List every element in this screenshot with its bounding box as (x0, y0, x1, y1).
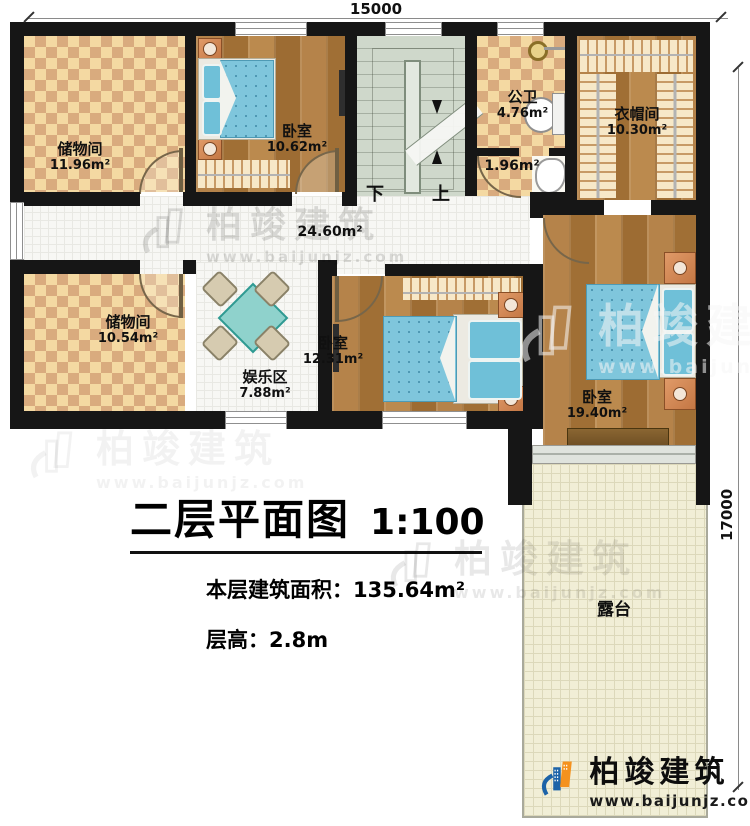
room-label-bedroom3: 卧室 19.40m² (547, 388, 647, 422)
nightstand (198, 38, 222, 60)
pillow (202, 64, 222, 100)
wall-hall-top-b (183, 192, 292, 206)
room-name: 娱乐区 (215, 368, 315, 386)
window-bedroom1-top (235, 22, 307, 36)
logo-brand-text: 柏竣建筑 (589, 755, 729, 790)
room-area: 19.40m² (547, 406, 647, 422)
closet-top-rack (580, 40, 693, 72)
room-name: 储物间 (73, 313, 183, 331)
room-area: 12.31m² (283, 352, 383, 368)
window-bedroom2-bottom (382, 411, 467, 429)
dimension-right-value: 17000 (718, 478, 736, 552)
room-label-bath-small: 1.96m² (472, 158, 552, 175)
wall-storage1-bedroom1 (185, 36, 196, 192)
dimension-tick (23, 11, 34, 22)
wall-hall-top-a (24, 192, 140, 206)
wall-cloak-bottom-a (543, 200, 604, 215)
pillow (468, 320, 522, 360)
room-label-fun: 娱乐区 7.88m² (215, 368, 315, 402)
room-label-bedroom1: 卧室 10.62m² (247, 122, 347, 156)
wall-hall-bottom-b (183, 260, 196, 274)
wall-top (10, 22, 710, 36)
logo-url-text: www.baijunjz.com (589, 792, 750, 810)
wall-terrace-left-stub (508, 429, 532, 505)
room-label-cloakroom: 衣帽间 10.30m² (587, 105, 687, 139)
wall-bath-cloak (565, 36, 577, 206)
wall-cloak-bottom-b (651, 200, 696, 215)
window-bath-top (497, 22, 544, 36)
room-area: 10.62m² (247, 140, 347, 156)
room-area: 24.60m² (290, 224, 370, 241)
floor-area-text: 本层建筑面积：135.64m² (206, 574, 490, 604)
room-name: 储物间 (25, 140, 135, 158)
room-name: 公卫 (480, 88, 565, 106)
room-name: 露台 (564, 600, 664, 620)
nightstand (664, 378, 696, 410)
watermark: 柏竣建筑www.baijunjz.com (28, 418, 307, 492)
room-label-storage2: 储物间 10.54m² (73, 313, 183, 347)
nightstand (198, 138, 222, 160)
pillow (662, 332, 694, 376)
room-name: 衣帽间 (587, 105, 687, 123)
wardrobe-rack (198, 160, 290, 188)
room-label-bedroom2: 卧室 12.31m² (283, 334, 383, 368)
company-logo: 柏竣建筑 www.baijunjz.com (540, 742, 750, 814)
wall-hall-bedroom3-stub (530, 196, 543, 218)
wall-bedroom2-top (385, 264, 523, 276)
dimension-line-right (738, 68, 739, 790)
door-leaf-storage1 (179, 148, 183, 192)
stairs-label-down: 下 (358, 184, 392, 206)
pillow (202, 100, 222, 136)
pillow (662, 288, 694, 332)
wall-hall-bottom-a (24, 260, 140, 274)
shower-arm-icon (544, 47, 565, 50)
floorplan-canvas: 下 上 储物间 11.96m² 卧室 10.62m² 公 (0, 0, 750, 826)
stairs-down-text: 下 (366, 184, 384, 205)
door-leaf-bedroom2 (335, 276, 339, 322)
door-leaf-storage2 (179, 274, 183, 318)
dimension-tick (715, 11, 726, 22)
floor-height-text: 层高：2.8m (206, 624, 490, 654)
room-area: 1.96m² (472, 158, 552, 175)
room-label-bath: 公卫 4.76m² (480, 88, 565, 122)
nightstand (498, 292, 524, 318)
window-hall-left (10, 202, 24, 260)
pillow (468, 360, 522, 400)
wall-hall-top-c (342, 192, 357, 206)
room-area: 10.30m² (587, 123, 687, 139)
room-area: 10.54m² (73, 331, 183, 347)
window-stairs-top (385, 22, 442, 36)
room-label-storage1: 储物间 11.96m² (25, 140, 135, 174)
wall-bath-divider-a (477, 148, 519, 156)
title-block: 二层平面图1:100 本层建筑面积：135.64m² 层高：2.8m (130, 486, 490, 654)
terrace-sliding-door (532, 445, 696, 464)
watermark-building-icon (28, 423, 86, 487)
drawing-scale: 1:100 (370, 502, 485, 543)
room-area: 4.76m² (480, 106, 565, 122)
wall-bedroom2-bedroom3 (523, 264, 543, 429)
logo-building-icon (540, 742, 581, 814)
wall-right (696, 22, 710, 505)
stairs-arrow-up-icon (432, 150, 442, 164)
shower-head-icon (528, 41, 548, 61)
room-label-terrace: 露台 (564, 600, 664, 620)
room-area: 7.88m² (215, 386, 315, 402)
room-area: 11.96m² (25, 158, 135, 174)
room-label-hall: 24.60m² (290, 224, 370, 241)
dimension-line-top (28, 18, 728, 19)
window-funzone-bottom (225, 411, 287, 429)
stairs-arrow-down-icon (432, 100, 442, 114)
dimension-top-value: 15000 (340, 0, 412, 18)
page-title: 二层平面图 (130, 495, 350, 544)
nightstand (664, 252, 696, 284)
room-name: 卧室 (283, 334, 383, 352)
stairs-rail (404, 60, 421, 194)
room-name: 卧室 (247, 122, 347, 140)
room-name: 卧室 (547, 388, 647, 406)
title-underline (130, 551, 482, 554)
stairs-up-text: 上 (432, 184, 450, 205)
wall-bedroom1-stairs (345, 36, 357, 196)
wall-bath-divider-b (549, 148, 565, 156)
stairs-label-up: 上 (424, 184, 458, 206)
